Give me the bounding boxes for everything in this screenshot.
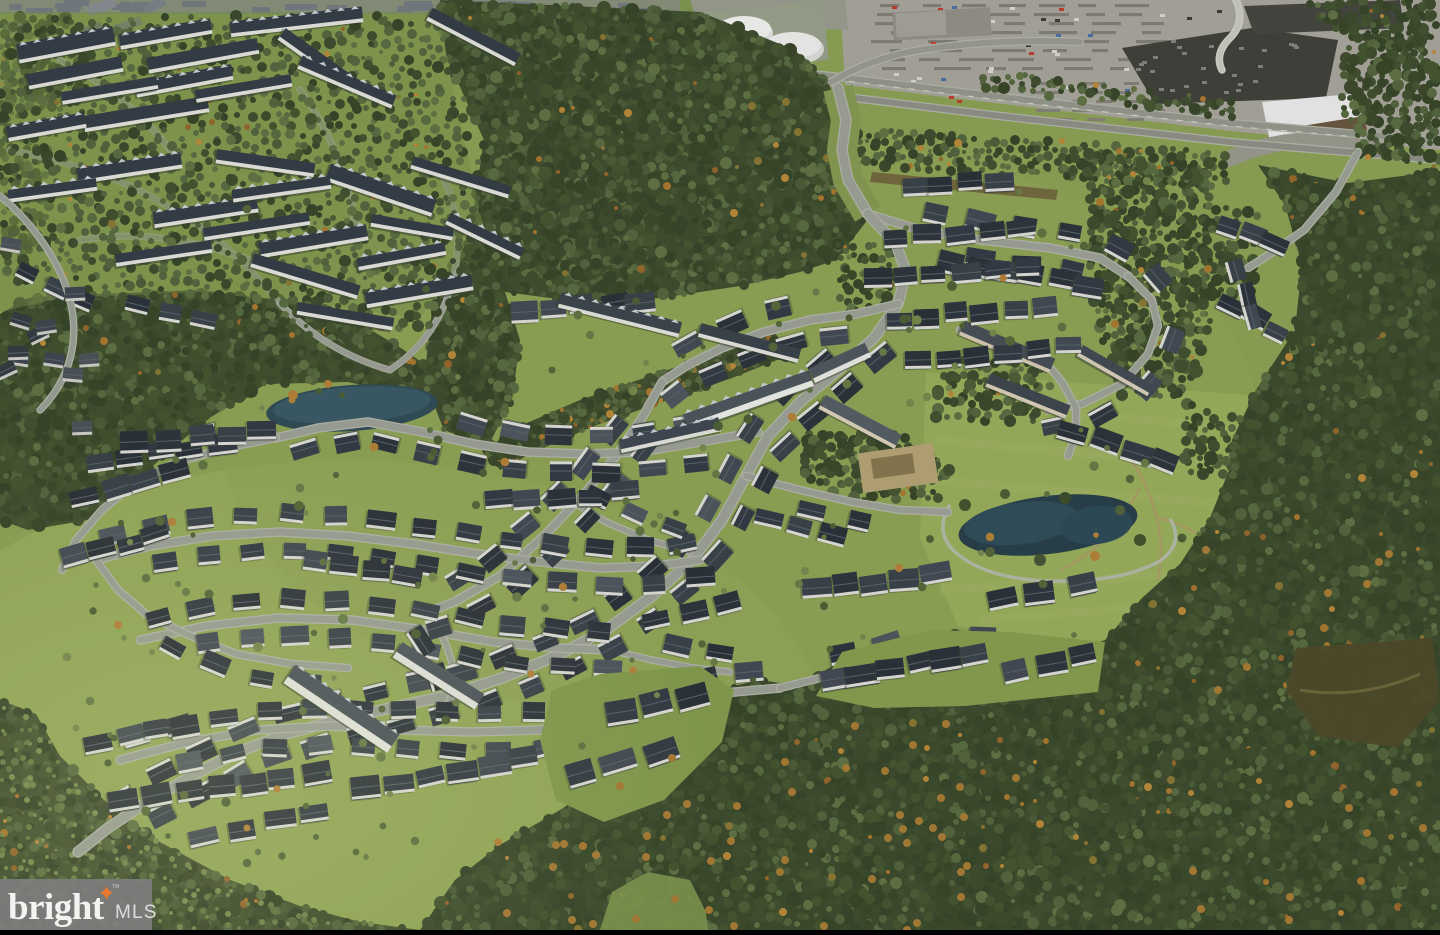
svg-text:bright: bright (8, 887, 105, 928)
svg-text:TM: TM (112, 884, 119, 890)
svg-text:MLS: MLS (115, 902, 158, 923)
